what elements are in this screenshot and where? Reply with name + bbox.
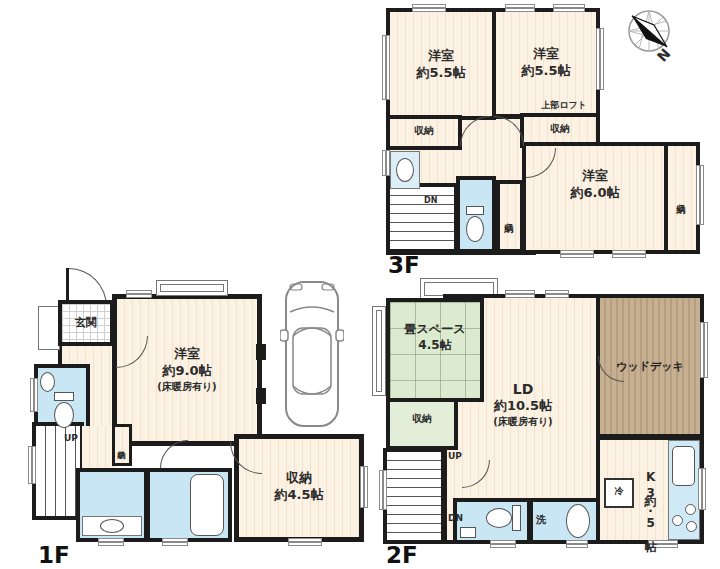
window-mark bbox=[162, 538, 188, 546]
stairs-up-label: UP bbox=[448, 451, 462, 463]
kitchen-label: K約3.5帖 bbox=[642, 458, 658, 544]
stairs-2f bbox=[383, 448, 445, 544]
compass-north-icon bbox=[626, 8, 672, 54]
car-illustration bbox=[280, 274, 344, 434]
washbasin-2f bbox=[566, 504, 590, 538]
stairs-dn-label: DN bbox=[448, 513, 463, 525]
window-mark bbox=[30, 378, 38, 412]
toilet-bowl-1f bbox=[54, 402, 74, 428]
closet-label: 収納 bbox=[388, 124, 460, 137]
window-mark bbox=[379, 470, 387, 510]
toilet-bowl-2f bbox=[486, 508, 512, 528]
bay-window-1f bbox=[156, 280, 228, 296]
porch-steps-1f bbox=[38, 306, 60, 350]
fridge-label: 冷 bbox=[604, 486, 634, 498]
washbasin-1f bbox=[100, 519, 124, 533]
hall-patch-1f bbox=[82, 426, 116, 472]
wood-deck-label: ウッドデッキ bbox=[598, 360, 702, 374]
closet-label: 収納 bbox=[674, 172, 686, 224]
room-label: LD 約10.5帖 (床暖房有り) bbox=[453, 380, 593, 428]
room-label: 洋室 約9.0帖 (床暖房有り) bbox=[117, 346, 257, 393]
toilet-tank-1f bbox=[54, 392, 74, 401]
stove-burner bbox=[685, 504, 696, 515]
stairs-3f bbox=[386, 183, 458, 253]
room-label: 畳スペース4.5帖 bbox=[386, 322, 484, 353]
window-mark bbox=[696, 165, 704, 225]
shutter-mark bbox=[256, 344, 266, 360]
toilet-bowl-3f bbox=[466, 216, 484, 242]
window-mark bbox=[505, 4, 535, 12]
stairs-dn-label: DN bbox=[424, 196, 437, 206]
window-mark bbox=[560, 250, 594, 258]
room-label: 洋室約6.0帖 bbox=[524, 168, 666, 202]
closet-label: 収納 bbox=[388, 412, 456, 425]
stove-burner bbox=[686, 521, 697, 532]
closet-label: 収納 bbox=[115, 428, 125, 462]
floor-label-3f: 3F bbox=[388, 252, 420, 278]
loft-note-label: 上部ロフト bbox=[530, 100, 598, 112]
floor-label-1f: 1F bbox=[38, 542, 70, 568]
window-mark bbox=[288, 538, 322, 546]
washbasin-3f bbox=[396, 158, 414, 182]
window-mark bbox=[98, 538, 124, 546]
entrance-label: 玄関 bbox=[58, 316, 114, 330]
window-mark bbox=[612, 250, 646, 258]
room-label: 収納約4.5帖 bbox=[238, 470, 360, 504]
window-mark bbox=[28, 446, 36, 484]
toilet-tank-3f bbox=[466, 206, 484, 215]
stove-burner bbox=[672, 515, 683, 526]
floor-label-2f: 2F bbox=[386, 542, 418, 568]
window-mark bbox=[490, 540, 516, 548]
window-mark bbox=[566, 540, 588, 548]
mini-basin-2f bbox=[460, 527, 476, 538]
washbasin-toilet-1f bbox=[40, 372, 55, 392]
window-mark bbox=[505, 290, 535, 298]
closet-label: 収納 bbox=[522, 122, 598, 135]
closet-label: 収納 bbox=[502, 192, 514, 242]
floor-plan-canvas: N 洋室約5.5帖 洋室約5.5帖 上部ロフト 収納 収納 洋室約6.0帖 収納… bbox=[0, 0, 720, 569]
shutter-mark bbox=[256, 388, 266, 404]
window-mark bbox=[412, 4, 446, 12]
window-mark bbox=[698, 468, 706, 510]
kitchen-sink-2f bbox=[672, 446, 695, 486]
window-mark bbox=[382, 150, 390, 176]
window-mark bbox=[126, 290, 152, 298]
bathtub-1f bbox=[190, 474, 224, 536]
washroom-label: 洗 bbox=[536, 513, 546, 526]
window-mark bbox=[360, 466, 368, 508]
window-mark bbox=[545, 290, 569, 298]
toilet-tank-2f bbox=[512, 505, 521, 531]
room-label: 洋室約5.5帖 bbox=[494, 46, 598, 80]
bay-window-outline-2f bbox=[372, 306, 386, 396]
room-label: 洋室約5.5帖 bbox=[388, 48, 494, 82]
window-mark bbox=[553, 4, 585, 12]
stairs-up-label: UP bbox=[64, 433, 78, 445]
